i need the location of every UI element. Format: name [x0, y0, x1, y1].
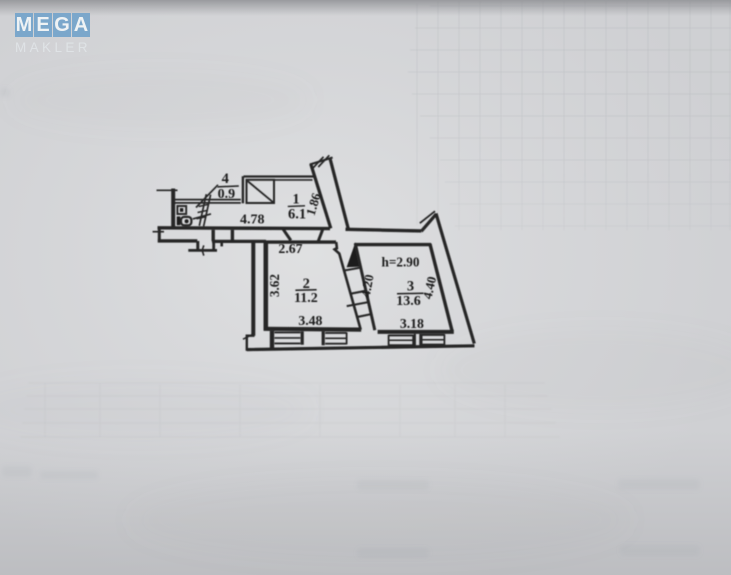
svg-text:2.67: 2.67: [278, 241, 302, 256]
svg-text:4: 4: [222, 171, 229, 187]
svg-text:3.18: 3.18: [400, 316, 424, 331]
svg-text:11.2: 11.2: [294, 291, 318, 306]
svg-text:0.9: 0.9: [218, 187, 236, 202]
svg-text:1: 1: [292, 191, 299, 207]
svg-text:4.78: 4.78: [240, 212, 265, 227]
svg-text:3.48: 3.48: [298, 313, 322, 328]
svg-text:h=2.90: h=2.90: [382, 255, 420, 270]
svg-text:3.62: 3.62: [267, 274, 282, 297]
svg-text:13.6: 13.6: [396, 294, 421, 309]
svg-text:3: 3: [407, 279, 414, 295]
